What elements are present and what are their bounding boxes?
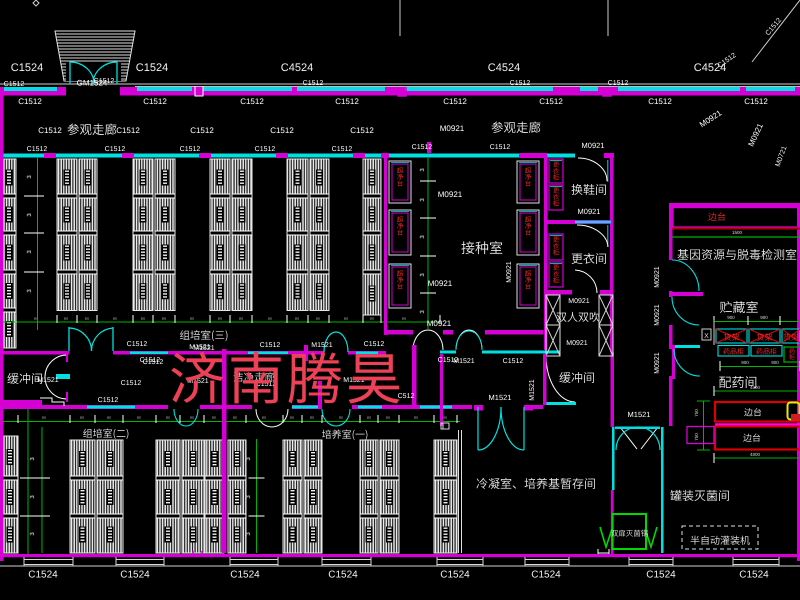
svg-text:C1512: C1512 xyxy=(127,341,148,348)
svg-text:4800: 4800 xyxy=(750,452,761,457)
svg-text:C1512: C1512 xyxy=(143,359,164,366)
svg-text:C1512: C1512 xyxy=(116,126,140,135)
svg-text:90: 90 xyxy=(107,415,112,420)
svg-text:90: 90 xyxy=(85,316,90,321)
svg-text:C4524: C4524 xyxy=(488,62,520,74)
svg-text:C1512: C1512 xyxy=(648,97,672,106)
svg-text:90: 90 xyxy=(34,316,39,321)
svg-text:90: 90 xyxy=(344,316,349,321)
svg-text:900: 900 xyxy=(771,360,779,365)
svg-text:90: 90 xyxy=(42,415,47,420)
svg-text:C1512: C1512 xyxy=(608,80,629,87)
svg-text:90: 90 xyxy=(295,316,300,321)
svg-text:750: 750 xyxy=(694,433,699,441)
svg-text:C1512: C1512 xyxy=(190,126,214,135)
svg-text:M0921: M0921 xyxy=(428,279,453,288)
svg-text:90: 90 xyxy=(166,415,171,420)
svg-text:C1512: C1512 xyxy=(364,341,385,348)
svg-text:C1512: C1512 xyxy=(744,97,768,106)
svg-text:900: 900 xyxy=(760,315,768,320)
svg-text:90: 90 xyxy=(113,316,118,321)
svg-text:900: 900 xyxy=(741,360,749,365)
svg-text:C1524: C1524 xyxy=(531,570,561,581)
svg-text:C4524: C4524 xyxy=(694,62,726,74)
svg-text:90: 90 xyxy=(190,415,195,420)
svg-text:M1521: M1521 xyxy=(193,345,215,352)
svg-text:C1512: C1512 xyxy=(539,97,563,106)
svg-text:M1521: M1521 xyxy=(529,379,536,401)
svg-text:750: 750 xyxy=(694,409,699,417)
svg-text:C1512: C1512 xyxy=(490,144,511,151)
svg-text:900: 900 xyxy=(727,315,735,320)
svg-text:90: 90 xyxy=(64,316,69,321)
svg-text:M1521: M1521 xyxy=(628,410,651,419)
svg-text:C1524: C1524 xyxy=(739,570,769,581)
svg-text:4800: 4800 xyxy=(750,385,761,390)
svg-text:C1512: C1512 xyxy=(105,146,126,153)
svg-text:M0921: M0921 xyxy=(582,141,605,150)
svg-text:C1512: C1512 xyxy=(143,97,167,106)
svg-text:M0921: M0921 xyxy=(568,298,590,305)
svg-text:M1521: M1521 xyxy=(311,342,333,349)
svg-text:90: 90 xyxy=(370,316,375,321)
svg-text:M0921: M0921 xyxy=(578,207,601,216)
svg-text:C4524: C4524 xyxy=(281,62,313,74)
svg-text:C1512: C1512 xyxy=(4,81,25,88)
svg-text:90: 90 xyxy=(386,415,391,420)
svg-text:C1524: C1524 xyxy=(440,570,470,581)
svg-text:M0921: M0921 xyxy=(654,266,661,288)
svg-text:C1512: C1512 xyxy=(303,80,324,87)
svg-text:90: 90 xyxy=(339,415,344,420)
svg-text:C1512: C1512 xyxy=(270,126,294,135)
svg-text:C1512: C1512 xyxy=(98,397,119,404)
svg-text:C1524: C1524 xyxy=(11,62,43,74)
svg-text:C1512: C1512 xyxy=(180,146,201,153)
svg-text:90: 90 xyxy=(80,415,85,420)
svg-text:C1512: C1512 xyxy=(18,97,42,106)
svg-text:C1524: C1524 xyxy=(120,570,150,581)
svg-text:C1512: C1512 xyxy=(503,358,524,365)
svg-text:90: 90 xyxy=(316,316,321,321)
svg-text:M0921: M0921 xyxy=(438,190,463,199)
svg-text:1500: 1500 xyxy=(732,230,743,235)
svg-text:C1524: C1524 xyxy=(136,62,168,74)
svg-text:90: 90 xyxy=(367,415,372,420)
svg-text:90: 90 xyxy=(141,316,146,321)
svg-text:90: 90 xyxy=(212,415,217,420)
svg-text:C512: C512 xyxy=(398,393,415,400)
svg-text:90: 90 xyxy=(310,415,315,420)
svg-text:M1521: M1521 xyxy=(489,393,512,402)
svg-text:M0921: M0921 xyxy=(427,319,452,328)
svg-text:C1524: C1524 xyxy=(646,570,676,581)
svg-text:90: 90 xyxy=(268,316,273,321)
svg-text:C1512: C1512 xyxy=(255,146,276,153)
svg-text:90: 90 xyxy=(262,415,267,420)
svg-text:C1524: C1524 xyxy=(28,570,58,581)
svg-text:C1512: C1512 xyxy=(240,97,264,106)
svg-text:M0921: M0921 xyxy=(654,304,661,326)
svg-text:C1512: C1512 xyxy=(510,80,531,87)
svg-text:X: X xyxy=(704,333,709,340)
svg-text:90: 90 xyxy=(233,415,238,420)
svg-text:C1512: C1512 xyxy=(94,78,115,85)
svg-text:C1524: C1524 xyxy=(328,570,358,581)
svg-text:C1512: C1512 xyxy=(332,146,353,153)
svg-text:C1512: C1512 xyxy=(335,97,359,106)
svg-text:90: 90 xyxy=(414,415,419,420)
svg-text:M0921: M0921 xyxy=(440,124,465,133)
svg-text:C1512: C1512 xyxy=(27,146,48,153)
svg-text:C1512: C1512 xyxy=(350,126,374,135)
svg-text:90: 90 xyxy=(443,415,448,420)
svg-text:C1512: C1512 xyxy=(121,380,142,387)
svg-text:C1524: C1524 xyxy=(230,570,260,581)
svg-text:M1521: M1521 xyxy=(453,358,475,365)
svg-text:C1512: C1512 xyxy=(412,144,433,151)
svg-text:90: 90 xyxy=(218,316,223,321)
svg-text:C1512: C1512 xyxy=(443,97,467,106)
svg-text:M1521: M1521 xyxy=(37,377,59,384)
svg-text:90: 90 xyxy=(239,316,244,321)
svg-text:C1512: C1512 xyxy=(260,342,281,349)
svg-text:90: 90 xyxy=(137,415,142,420)
svg-text:M0921: M0921 xyxy=(566,340,588,347)
svg-text:90: 90 xyxy=(402,316,407,321)
svg-text:M0921: M0921 xyxy=(506,261,513,283)
svg-text:90: 90 xyxy=(290,415,295,420)
svg-text:90: 90 xyxy=(162,316,167,321)
svg-text:C1512: C1512 xyxy=(38,126,62,135)
svg-text:M0921: M0921 xyxy=(654,352,661,374)
svg-text:90: 90 xyxy=(190,316,195,321)
